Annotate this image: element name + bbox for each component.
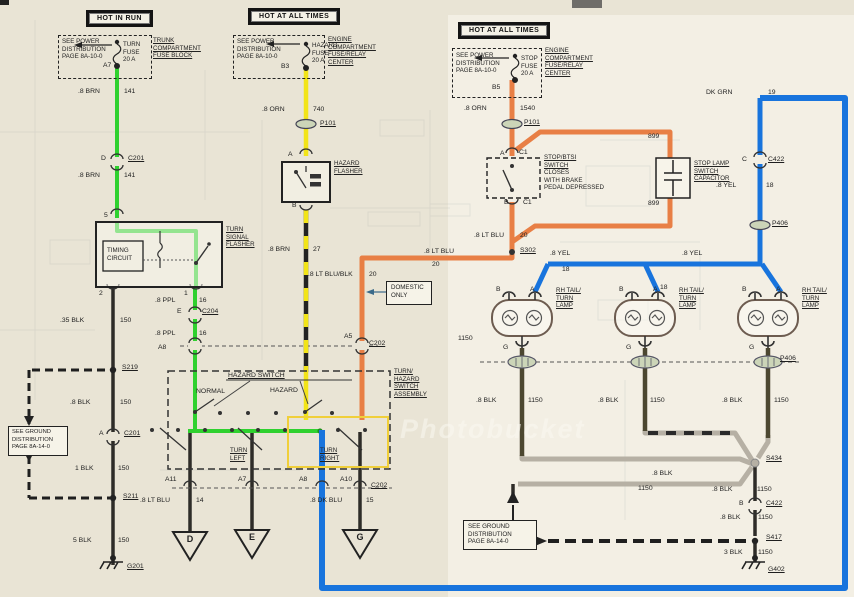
wire-label: A [530, 286, 535, 293]
wire-label: .8 BLK [70, 399, 90, 406]
wire-label: B5 [492, 84, 500, 91]
hazard-switch-label: HAZARD SWITCH [228, 372, 285, 379]
wire-label: G402 [768, 566, 785, 573]
wire-label: A7 [103, 62, 111, 69]
wire-label: B [496, 286, 501, 293]
wire-label: 899 [648, 200, 659, 207]
wire-label: G [749, 344, 754, 351]
wire-label: .35 BLK [60, 317, 84, 324]
wire-label: A5 [344, 333, 352, 340]
wire-label: 14 [196, 497, 204, 504]
wire-label: A [776, 286, 781, 293]
wire-label: 150 [120, 399, 131, 406]
wire-label: C201 [124, 430, 140, 437]
wire-label: G [503, 344, 508, 351]
wire-label: .8 YEL [716, 182, 736, 189]
wire-label: S302 [520, 247, 536, 254]
wire-label: B [504, 199, 509, 206]
lamp-label-1: RH TAIL/ TURN LAMP [556, 287, 581, 310]
wire-label: .8 BLK [476, 397, 496, 404]
wire-label: C202 [369, 340, 385, 347]
wire-label: 1540 [520, 105, 535, 112]
wire-label: .8 BRN [78, 172, 100, 179]
hot-in-run-banner: HOT IN RUN [86, 10, 153, 27]
wire-label: A [288, 151, 293, 158]
wire-label: G201 [127, 563, 144, 570]
timing-circuit-label: TIMING CIRCUIT [107, 247, 132, 262]
wire-label: 20 [369, 271, 377, 278]
tail-turn-lamps [492, 292, 798, 348]
wire-label: .8 BLK [598, 397, 618, 404]
hazard-flasher-label: HAZARD FLASHER [334, 160, 363, 175]
wire-label: 18 [766, 182, 774, 189]
wire-label: .8 BLK [720, 514, 740, 521]
wire-label: 15 [366, 497, 374, 504]
wire-label: .8 PPL [155, 330, 175, 337]
wire-label: 20 [432, 261, 440, 268]
wire-label: 1150 [774, 397, 789, 404]
wire-label: 5 BLK [73, 537, 92, 544]
stop-switch [487, 158, 540, 198]
trunk-fuse-block-label: TRUNK COMPARTMENT FUSE BLOCK [153, 37, 201, 60]
stop-fuse-label: STOP FUSE 20 A [521, 55, 538, 78]
wire-label: 1150 [650, 397, 665, 404]
hot-at-all-times-banner-1: HOT AT ALL TIMES [248, 8, 340, 25]
wire-label: 1150 [758, 514, 773, 521]
wire-label: .8 BLK [652, 470, 672, 477]
wire-label: C422 [768, 156, 784, 163]
hazard-flasher [282, 162, 330, 202]
stop-switch-label: STOP/BTSI SWITCH CLOSES WITH BRAKE PEDAL… [544, 154, 604, 192]
wire-label: B [292, 202, 297, 209]
wire-label: .8 ORN [464, 105, 487, 112]
wire-label: .8 BRN [78, 88, 100, 95]
wire-label: 1 [184, 290, 188, 297]
wire-label: P406 [780, 355, 796, 362]
wire-label: S434 [766, 455, 782, 462]
triangle-connector-g: G [342, 529, 378, 561]
power-dist-note: SEE POWER DISTRIBUTION PAGE 8A-10-0 [237, 38, 281, 61]
wire-label: .8 LT BLU [140, 497, 170, 504]
ground-ref-mid-box: SEE GROUND DISTRIBUTION PAGE 8A-14-0 [463, 520, 537, 550]
wire-label: 1150 [458, 335, 473, 342]
power-dist-note: SEE POWER DISTRIBUTION PAGE 8A-10-0 [456, 52, 500, 75]
wire-label: C1 [523, 199, 532, 206]
wire-label: C204 [202, 308, 218, 315]
wire-label: 141 [124, 172, 135, 179]
wire-label: S219 [122, 364, 138, 371]
engine-fuse-center-label-1: ENGINE COMPARTMENT FUSE/RELAY CENTER [328, 36, 376, 66]
wire-label: C1 [519, 149, 528, 156]
wire-label: E [177, 308, 182, 315]
lamp-label-2: RH TAIL/ TURN LAMP [679, 287, 704, 310]
wire-label: 1150 [638, 485, 653, 492]
wire-label: 27 [313, 246, 321, 253]
scan-corner [0, 0, 9, 5]
wire-label: 18 [660, 284, 668, 291]
wire-label: S417 [766, 534, 782, 541]
wire-label: 2 [99, 290, 103, 297]
wire-label: P101 [320, 120, 336, 127]
triangle-connector-e: E [234, 529, 270, 561]
switch-assembly [150, 371, 390, 469]
wire-label: .8 ORN [262, 106, 285, 113]
power-dist-note: SEE POWER DISTRIBUTION PAGE 8A-10-0 [62, 38, 106, 61]
wire-label: 1150 [758, 549, 773, 556]
wire-label: A8 [158, 344, 166, 351]
wire-label: G [626, 344, 631, 351]
lamp-label-3: RH TAIL/ TURN LAMP [802, 287, 827, 310]
wire-label: .8 LT BLU [424, 248, 454, 255]
wire-label: C201 [128, 155, 144, 162]
wire-label: 740 [313, 106, 324, 113]
wire-label: C202 [371, 482, 387, 489]
wire-label: 16 [199, 297, 207, 304]
wire-label: 1150 [757, 486, 772, 493]
wire-label: .8 BLK [712, 486, 732, 493]
wire-label: B [739, 500, 744, 507]
turn-flasher-label: TURN SIGNAL FLASHER [226, 226, 255, 249]
wire-label: 899 [648, 133, 659, 140]
wire-label: A7 [238, 476, 246, 483]
wire-label: 150 [118, 465, 129, 472]
wire-label: P101 [524, 119, 540, 126]
wire-label: 16 [199, 330, 207, 337]
wire-label: .8 YEL [682, 250, 702, 257]
wire-label: 150 [118, 537, 129, 544]
watermark: Photobucket [400, 414, 730, 445]
wire-label: .8 YEL [550, 250, 570, 257]
wire-label: S211 [123, 493, 138, 500]
wire-label: .8 PPL [155, 297, 175, 304]
turn-fuse-label: TURN FUSE 20 A [123, 41, 140, 64]
wire-label: D [101, 155, 106, 162]
wire-label: A [99, 430, 104, 437]
wire-label: B [742, 286, 747, 293]
wire-label: .8 LT BLU [474, 232, 504, 239]
wiring-diagram: HOT IN RUN SEE POWER DISTRIBUTION PAGE 8… [0, 0, 854, 597]
wire-label: 20 [520, 232, 528, 239]
wire-label: P406 [772, 220, 788, 227]
switch-assembly-label: TURN/ HAZARD SWITCH ASSEMBLY [394, 368, 427, 398]
wire-label: A8 [299, 476, 307, 483]
ground-ref-left-box: SEE GROUND DISTRIBUTION PAGE 8A-14-0 [8, 426, 68, 456]
wire-label: B3 [281, 63, 289, 70]
wire-label: .8 LT BLU/BLK [308, 271, 353, 278]
wire-label: .8 DK BLU [310, 497, 342, 504]
wire-label: C [742, 156, 747, 163]
engine-fuse-center-label-2: ENGINE COMPARTMENT FUSE/RELAY CENTER [545, 47, 593, 77]
turn-right-label: TURN RIGHT [320, 447, 339, 462]
wire-label: 3 BLK [724, 549, 743, 556]
wire-label: DK GRN [706, 89, 732, 96]
wire-label: A10 [340, 476, 352, 483]
wire-label: A11 [165, 476, 177, 483]
domestic-only-box: DOMESTIC ONLY [386, 281, 432, 305]
wire-label: .8 BRN [268, 246, 290, 253]
wire-label: 141 [124, 88, 135, 95]
wire-label: 150 [120, 317, 131, 324]
turn-left-label: TURN LEFT [230, 447, 247, 462]
hazard-position-label: HAZARD [270, 387, 298, 394]
stop-lamp-capacitor [656, 158, 690, 198]
wire-label: A [653, 286, 658, 293]
wire-label: 1 BLK [75, 465, 94, 472]
normal-position-label: NORMAL [196, 388, 225, 395]
wire-label: 19 [768, 89, 776, 96]
wire-label: 1150 [528, 397, 543, 404]
banner-text: HOT IN RUN [89, 13, 150, 24]
triangle-connector-d: D [172, 531, 208, 563]
domestic-arrow-head [366, 289, 374, 295]
wire-label: B [619, 286, 624, 293]
hot-at-all-times-banner-2: HOT AT ALL TIMES [458, 22, 550, 39]
capacitor-label: STOP LAMP SWITCH CAPACITOR [694, 160, 730, 183]
wire-label: A [500, 150, 505, 157]
wire-label: 18 [562, 266, 570, 273]
wire-label: C422 [766, 500, 782, 507]
scan-mark [572, 0, 602, 8]
wire-label: 5 [104, 212, 108, 219]
wire-label: .8 BLK [722, 397, 742, 404]
